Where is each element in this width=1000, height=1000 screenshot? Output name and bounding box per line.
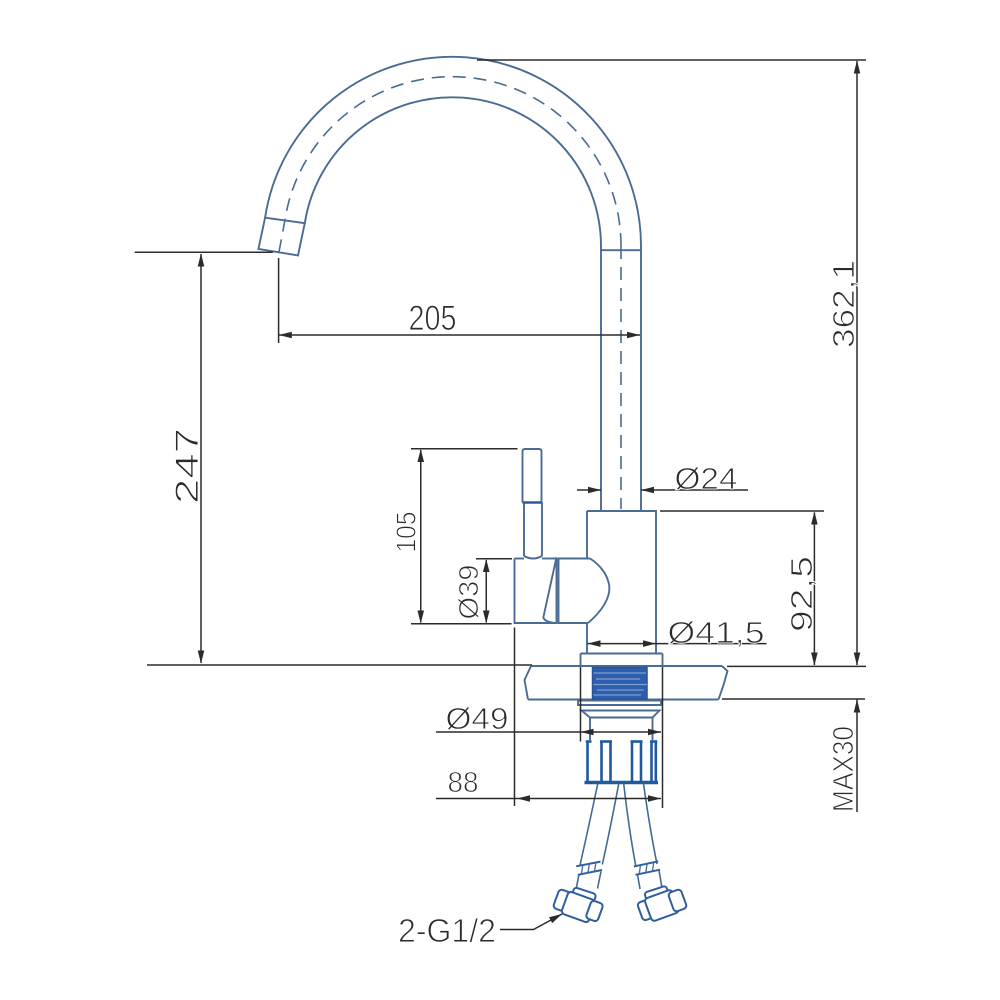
- svg-text:88: 88: [448, 767, 479, 799]
- svg-text:MAX30: MAX30: [828, 726, 860, 812]
- svg-text:Ø39: Ø39: [453, 565, 484, 620]
- svg-text:2-G1/2: 2-G1/2: [398, 912, 496, 949]
- svg-text:Ø41,5: Ø41,5: [668, 615, 765, 650]
- svg-text:Ø49: Ø49: [446, 701, 509, 736]
- svg-text:105: 105: [391, 512, 422, 553]
- svg-text:92,5: 92,5: [784, 556, 819, 632]
- svg-text:Ø24: Ø24: [675, 461, 738, 496]
- svg-text:362,1: 362,1: [826, 260, 861, 348]
- svg-text:205: 205: [409, 299, 457, 338]
- svg-text:247: 247: [169, 428, 205, 504]
